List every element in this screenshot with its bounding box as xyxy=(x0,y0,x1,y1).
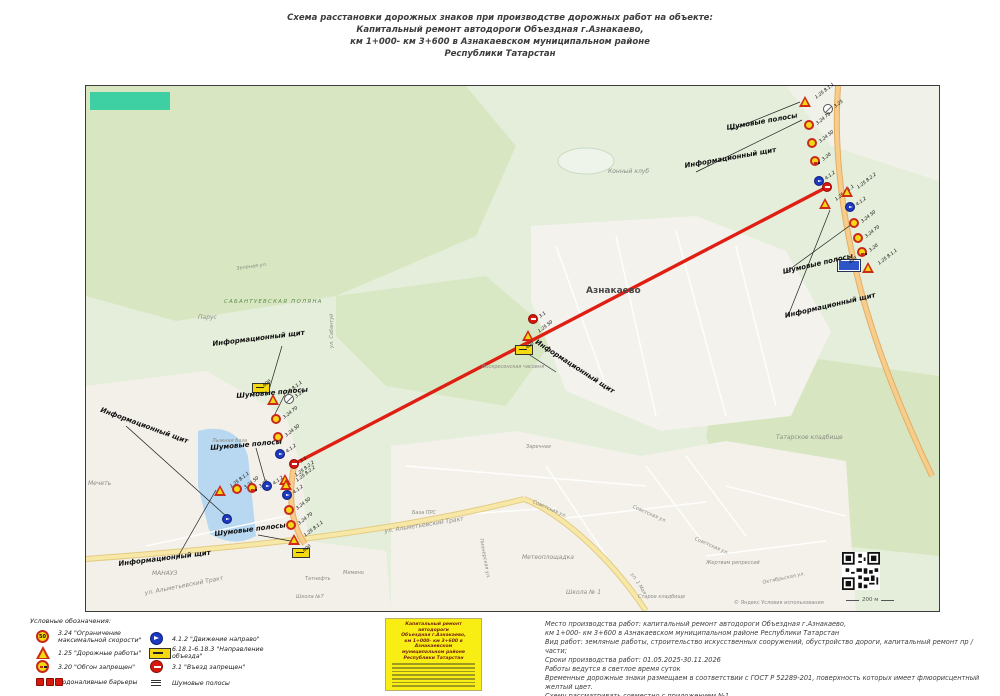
road-sign-label: 1.25 50 xyxy=(537,320,554,335)
road-sign-tri: 1.25 8.1.1 xyxy=(288,534,300,545)
road-sign-tri: 1.25 8.1.1 xyxy=(214,485,226,496)
roadworks-sign-icon xyxy=(36,646,51,660)
road-sign-label: 3.1 xyxy=(538,311,547,319)
stamp-fineprint-line xyxy=(392,667,475,669)
road-sign-cr: 3.1 xyxy=(528,314,538,324)
map-place-label: МАНАУЗ xyxy=(152,570,177,577)
map-place-label: Парус xyxy=(198,314,217,321)
legend-item-320: 3.20 "Обгон запрещен" xyxy=(36,660,135,674)
legend-item-label: 1.25 "Дорожные работы" xyxy=(58,650,141,657)
speed-limit-sign-icon: 50 xyxy=(36,630,51,644)
road-sign-label: 3.24 70 xyxy=(864,225,881,240)
title-line-2: Капитальный ремонт автодороги Объездная … xyxy=(0,24,1000,36)
turn-right-sign-icon xyxy=(150,632,165,646)
sheet-title: Схема расстановки дорожных знаков при пр… xyxy=(0,12,1000,60)
legend-item-label: Шумовые полосы xyxy=(172,680,230,687)
road-sign-label: 4.1.2 xyxy=(292,484,304,495)
road-sign-cb: 4.1.2 xyxy=(845,202,855,212)
map-place-label: Конный клуб xyxy=(608,168,649,175)
note-line: Работы ведутся в светлое время суток xyxy=(545,665,980,674)
road-sign-cr xyxy=(822,182,832,192)
note-line: Схему рассматривать совместно с приложен… xyxy=(545,692,980,696)
map-place-label: Воскресенская часовня xyxy=(482,364,544,370)
note-line: Вид работ: земляные работы, строительств… xyxy=(545,638,980,656)
legend-item-label: 3.20 "Обгон запрещен" xyxy=(58,664,135,671)
map-place-label: Жертвам репрессий xyxy=(706,560,760,566)
road-sign-cy: 3.24 50 xyxy=(807,138,817,148)
road-sign-label: 3.24 70 xyxy=(297,512,314,527)
title-stamp-box: Капитальный ремонт автодороги Объездная … xyxy=(385,618,482,691)
road-sign-label: 3.24 70 xyxy=(282,406,299,421)
map-place-label: Мечеть xyxy=(88,480,111,487)
stamp-line: Республики Татарстан xyxy=(390,656,477,662)
map-place-label: Азнакаево xyxy=(586,286,641,296)
no-entry-sign-icon xyxy=(150,660,165,674)
map-copyright: © Яндекс Условия использования xyxy=(734,600,824,606)
road-sign-cy: 3.24 50 xyxy=(284,505,294,515)
road-sign-label: 1.25 8.2.2 xyxy=(856,172,877,190)
scale-dash xyxy=(846,600,859,601)
road-sign-label: 1.25 8.1.1 xyxy=(303,520,324,538)
road-sign-label: 3.24 50 xyxy=(284,424,301,439)
map-place-label: ул. Сабантуй xyxy=(329,314,335,348)
map-place-label: ул. 1 Мая xyxy=(629,572,647,596)
map-scale-bar: 200 м xyxy=(846,597,894,603)
legend-item-barriers: Водоналивные барьеры xyxy=(36,675,137,689)
detour-direction-sign-icon xyxy=(150,646,165,660)
road-sign-label: 3.20 xyxy=(868,243,879,253)
scheme-sheet: { "title": { "line1": "Схема расстановки… xyxy=(0,0,1000,696)
road-sign-label: 1.25 8.1.1 xyxy=(814,82,835,100)
legend-item-label: 3.1 "Въезд запрещен" xyxy=(172,664,245,671)
map-place-label: Школа № 1 xyxy=(566,589,601,596)
road-sign-cy2: 3.20 xyxy=(810,156,820,166)
road-sign-ry: 400 xyxy=(515,345,533,355)
road-sign-tri: 1.25 8.1.1 xyxy=(799,96,811,107)
road-sign-tri: 1.25 8.1.1 xyxy=(819,198,831,209)
note-line: Временные дорожные знаки размещаем в соо… xyxy=(545,674,980,692)
road-sign-tri: 1.25 50 xyxy=(522,330,534,341)
legend-item-618: 6.18.1-6.18.3 "Направление объезда" xyxy=(150,646,284,660)
stamp-fineprint-line xyxy=(392,671,475,673)
road-sign-label: 600 xyxy=(262,379,272,388)
road-sign-cb: 4.1.2 xyxy=(262,481,272,491)
map-overlay: Конный клубАзнакаевоСАБАНТУЕВСКАЯ ПОЛЯНА… xyxy=(86,86,939,611)
teal-swatch xyxy=(90,92,170,110)
road-sign-cy2: 3.20 xyxy=(247,483,257,493)
map-place-label: Татарское кладбище xyxy=(776,434,843,441)
road-sign-label: 1.25 8.1.1 xyxy=(877,248,898,266)
title-line-1: Схема расстановки дорожных знаков при пр… xyxy=(0,12,1000,24)
map-place-label: Татнефть xyxy=(305,576,331,582)
road-sign-cr: 3.1 xyxy=(289,459,299,469)
road-sign-cb xyxy=(222,514,232,524)
map-place-label: Мимино xyxy=(343,570,364,576)
stamp-line: Объездная г.Азнакаево, xyxy=(390,633,477,639)
road-sign-cb: 4.1.2 xyxy=(282,490,292,500)
stamp-line: муниципальном районе xyxy=(390,650,477,656)
map-place-label: Старое кладбище xyxy=(638,594,685,600)
map-canvas: Конный клубАзнакаевоСАБАНТУЕВСКАЯ ПОЛЯНА… xyxy=(85,85,940,612)
map-place-label: ул. Альметьевский Тракт xyxy=(144,575,224,597)
road-sign-cy2: 3.20 xyxy=(857,247,867,257)
note-line: Место производства работ: капитальный ре… xyxy=(545,620,980,629)
legend-item-label: Водоналивные барьеры xyxy=(58,679,137,686)
road-sign-cy: 3.24 50 xyxy=(232,484,242,494)
legend-header: Условные обозначения: xyxy=(30,617,111,625)
road-sign-label: 3.24 50 xyxy=(818,130,835,145)
stamp-fineprint-line xyxy=(392,685,475,687)
map-place-label: Зеленая ул. xyxy=(236,262,268,272)
legend-item-412: 4.1.2 "Движение направо" xyxy=(150,632,260,646)
road-sign-label: 3.20 xyxy=(821,152,832,162)
stamp-line: км 1+000- км 3+600 в Азнакаевском xyxy=(390,639,477,650)
legend-item-label: 4.1.2 "Движение направо" xyxy=(172,636,260,643)
water-barrier-icon xyxy=(36,675,51,689)
road-sign-label: 4.1.2 xyxy=(285,443,297,454)
rumble-strips-icon xyxy=(150,676,165,690)
note-line: Сроки производства работ: 01.05.2025-30.… xyxy=(545,656,980,665)
info-board-callout: Информационный щит xyxy=(99,406,189,445)
title-line-3: км 1+000- км 3+600 в Азнакаевском муници… xyxy=(0,36,1000,48)
road-sign-tri: 1.25 8.2.2 xyxy=(280,479,292,490)
info-board-callout: Информационный щит xyxy=(212,329,305,348)
info-board-callout: Информационный щит xyxy=(684,146,777,170)
map-place-label: Заречная xyxy=(526,444,551,450)
map-place-label: Октябрьская ул. xyxy=(762,571,806,586)
road-sign-cy: 3.24 70 xyxy=(804,120,814,130)
road-sign-ry: 600 xyxy=(292,548,310,558)
map-place-label: Советская ул. xyxy=(532,499,568,519)
road-sign-tri: 1.25 8.1.1 xyxy=(862,262,874,273)
info-board-callout: Информационный щит xyxy=(534,338,616,395)
map-place-label: Советская ул. xyxy=(632,504,668,524)
legend-item-31: 3.1 "Въезд запрещен" xyxy=(150,660,245,674)
map-place-label: Пионерская ул. xyxy=(478,538,491,579)
rumble-strips-callout: Шумовые полосы xyxy=(726,112,798,132)
stamp-fineprint-line xyxy=(392,678,475,680)
map-place-label: Школа №7 xyxy=(296,594,324,600)
stamp-fineprint-line xyxy=(392,682,475,684)
road-sign-tri: 1.25 8.2.2 xyxy=(841,186,853,197)
no-overtaking-sign-icon xyxy=(36,660,51,674)
stamp-fineprint-line xyxy=(392,674,475,676)
legend-item-noise: Шумовые полосы xyxy=(150,676,230,690)
stamp-line: Капитальный ремонт автодороги xyxy=(390,622,477,633)
road-sign-cy: 3.24 70 xyxy=(271,414,281,424)
map-place-label: Советская ул. xyxy=(694,536,730,556)
info-board-callout: Информационный щит xyxy=(118,549,211,568)
scale-label: 200 м xyxy=(862,597,878,603)
road-sign-cy: 3.24 70 xyxy=(853,233,863,243)
stamp-fineprint-line xyxy=(392,663,475,665)
map-place-label: ул. Альметьевский Тракт xyxy=(384,515,464,534)
map-place-label: Метеоплощадка xyxy=(522,554,574,561)
qr-code xyxy=(842,552,880,590)
note-line: км 1+000- км 3+600 в Азнакаевском муници… xyxy=(545,629,980,638)
scale-dash xyxy=(881,600,894,601)
road-sign-cy: 3.24 70 xyxy=(286,520,296,530)
road-sign-label: 4.1.2 xyxy=(855,196,867,207)
map-place-label: САБАНТУЕВСКАЯ ПОЛЯНА xyxy=(224,299,323,305)
info-board-callout: Информационный щит xyxy=(784,291,876,320)
road-sign-cy: 3.24 50 xyxy=(849,218,859,228)
road-sign-label: 3.25 xyxy=(833,99,844,109)
map-place-label: База ПРС xyxy=(412,510,436,516)
road-sign-label: 3.24 50 xyxy=(295,497,312,512)
road-sign-cb: 4.1.2 xyxy=(275,449,285,459)
title-line-4: Республики Татарстан xyxy=(0,48,1000,60)
road-sign-label: 3.24 70 xyxy=(815,112,832,127)
road-sign-label: 600 xyxy=(302,544,312,553)
work-notes: Место производства работ: капитальный ре… xyxy=(545,620,980,696)
legend-item-125: 1.25 "Дорожные работы" xyxy=(36,646,141,660)
road-sign-label: 3.24 50 xyxy=(860,210,877,225)
road-sign-label: 4.1.2 xyxy=(824,170,836,181)
legend-item-label: 6.18.1-6.18.3 "Направление объезда" xyxy=(172,646,284,660)
